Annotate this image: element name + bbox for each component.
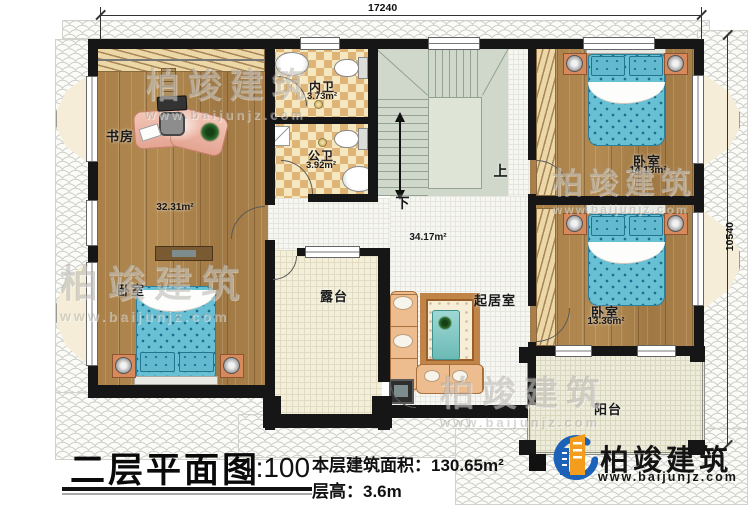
wall-suite-bottom <box>88 385 275 398</box>
bookshelf <box>161 68 176 98</box>
pillar-terrace-left <box>263 396 281 428</box>
bed2-pillow-left <box>591 216 625 236</box>
sofa-pillow-3 <box>424 370 440 382</box>
window-top-bedroom1 <box>583 37 655 50</box>
lamp-master-right <box>223 357 240 374</box>
lamp-bed1-right <box>667 55 684 72</box>
stair-landing <box>428 97 482 189</box>
floorplan-canvas: 书房 32.31m² 卧室 内卫 3.73m² 公卫 3.92m² 34.17m… <box>0 0 750 505</box>
window-bay-right-middle <box>692 212 704 306</box>
sink-inner-bath <box>275 52 309 76</box>
window-top-bath <box>300 37 340 50</box>
area-hall: 34.17m² <box>409 232 446 243</box>
area-public-bath: 3.92m² <box>306 160 336 171</box>
label-balcony: 阳台 <box>594 399 622 418</box>
pillar-balcony-top-right <box>690 346 705 362</box>
logo-bullet <box>529 454 546 471</box>
bed-master-pillow-left <box>140 352 175 372</box>
label-bedroom-left: 卧室 <box>117 280 145 299</box>
bed1-pillow-right <box>629 56 663 76</box>
floor-height-label: 层高：3.6m <box>312 477 402 502</box>
wall-bedrooms-left-a <box>528 39 536 160</box>
sofa-pillow-4 <box>452 370 468 382</box>
area-inner-bath: 3.73m² <box>307 91 337 102</box>
lamp-bed2-right <box>667 215 684 232</box>
bed-master-pillow-right <box>179 352 214 372</box>
sofa-pillow-1 <box>393 296 413 310</box>
window-bed2-bottom-left <box>555 345 592 357</box>
company-website: www.baijunjz.com <box>598 470 738 484</box>
toilet-tank-public <box>358 128 368 150</box>
stair-direction-arrow <box>399 120 401 192</box>
window-bay-left-top <box>86 76 98 162</box>
dim-right-value: 10540 <box>724 222 736 251</box>
window-left-middle <box>86 200 98 246</box>
dim-top-value: 17240 <box>368 2 397 14</box>
label-study: 书房 <box>106 126 134 145</box>
floor-area-label: 本层建筑面积：130.65m² <box>312 451 504 476</box>
pillar-balcony-bottom-left <box>519 440 536 455</box>
wall-right-a <box>694 39 704 75</box>
wall-bath-divider <box>268 117 372 124</box>
toilet-tank-inner <box>358 57 368 79</box>
floor-corridor <box>268 198 390 250</box>
floorplan-title: 二层平面图 <box>70 442 260 493</box>
area-bedroom2: 13.36m² <box>587 316 624 327</box>
label-stairs-down: 下 <box>396 193 411 213</box>
wall-living-bottom <box>372 405 528 418</box>
stair-flight-top <box>428 44 482 97</box>
dim-line-top <box>100 15 702 16</box>
bed-master-headboard <box>134 376 218 385</box>
area-bedroom1: 14.13m² <box>629 165 666 176</box>
company-logo-icon <box>548 430 598 486</box>
wall-bath-bottom <box>308 194 378 202</box>
wall-right-b <box>694 164 704 212</box>
window-bay-right-top <box>692 75 704 164</box>
title-underline-thick <box>62 487 312 491</box>
desk-monitor <box>157 95 188 112</box>
bed2-pillow-right <box>629 216 663 236</box>
title-underline-thin <box>62 493 312 495</box>
window-top-stair <box>428 37 480 50</box>
wardrobe-rail <box>97 59 265 61</box>
window-terrace <box>305 246 360 258</box>
scale-label: 1:100 <box>240 452 310 484</box>
bed1-pillow-left <box>591 56 625 76</box>
toilet-bowl-public <box>334 130 359 148</box>
office-chair <box>159 112 185 136</box>
wall-terrace-right-upper <box>378 248 390 382</box>
pillar-balcony-top-left <box>519 347 536 363</box>
sofa-pillow-2 <box>393 334 413 348</box>
light-public-bath <box>318 138 327 147</box>
lamp-bed1-left <box>566 55 583 72</box>
tv-master <box>172 250 196 257</box>
label-terrace: 露台 <box>320 286 348 305</box>
window-bay-left-bottom <box>86 262 98 366</box>
wall-bed2-bottom-b <box>592 346 637 356</box>
bed2-headboard <box>586 204 666 214</box>
lamp-master-left <box>115 357 132 374</box>
wall-bedroom-divider <box>536 196 702 205</box>
wall-bedrooms-left-b <box>528 194 536 306</box>
potted-plant <box>200 122 220 142</box>
label-living-room: 起居室 <box>474 290 516 309</box>
area-master-suite: 32.31m² <box>156 202 193 213</box>
lamp-bed2-left <box>566 215 583 232</box>
pillar-terrace-right <box>372 396 392 428</box>
window-bed2-bottom-right <box>637 345 676 357</box>
table-flowers <box>438 316 452 330</box>
toilet-bowl-inner <box>334 59 359 77</box>
label-stairs-up: 上 <box>494 161 509 181</box>
stair-arrow-up-head <box>395 112 405 122</box>
